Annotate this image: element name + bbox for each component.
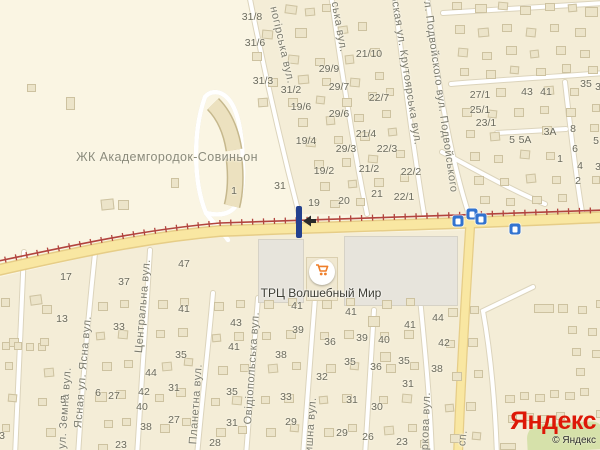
house-number: 8 xyxy=(570,123,576,135)
residential-complex-label: ЖК Академгородок-Совиньон xyxy=(76,150,258,164)
house-number: 23 xyxy=(115,439,127,450)
building xyxy=(452,372,462,381)
house-number: 22/7 xyxy=(369,92,389,104)
building xyxy=(66,97,75,110)
building xyxy=(494,155,503,163)
building xyxy=(592,104,600,112)
building xyxy=(526,28,537,38)
building xyxy=(218,366,228,375)
house-number: 41 xyxy=(404,319,416,331)
building xyxy=(350,78,361,88)
building xyxy=(14,342,22,350)
building xyxy=(585,7,598,17)
building xyxy=(46,428,56,437)
house-number: 1 xyxy=(557,153,563,165)
building xyxy=(580,50,590,58)
house-number: 21/10 xyxy=(356,48,382,60)
building xyxy=(565,392,575,400)
house-number: 25/1 xyxy=(470,104,490,116)
house-number: 31/3 xyxy=(253,75,273,87)
building xyxy=(510,66,520,75)
building xyxy=(374,178,384,187)
house-number: 38 xyxy=(275,349,287,361)
house-number: 19 xyxy=(308,197,320,209)
building xyxy=(546,152,555,160)
house-number: 36 xyxy=(370,361,382,373)
house-number: 5А xyxy=(519,134,532,146)
building xyxy=(534,304,554,313)
building xyxy=(404,330,414,339)
house-number: 38 xyxy=(140,421,152,433)
residential-complex-building xyxy=(213,104,234,150)
building xyxy=(324,428,334,437)
building xyxy=(520,150,531,160)
building xyxy=(588,66,598,74)
building xyxy=(122,418,131,426)
house-number: 35 xyxy=(398,355,410,367)
house-number: 5 xyxy=(60,394,66,406)
house-number: 31 xyxy=(402,378,414,390)
house-number: 3 xyxy=(0,430,5,442)
house-number: 21 xyxy=(371,188,383,200)
map-attribution: Яндекс © Яндекс xyxy=(510,409,596,446)
building xyxy=(396,150,405,158)
house-number: 40 xyxy=(136,401,148,413)
building xyxy=(502,24,512,32)
building xyxy=(348,424,357,432)
building xyxy=(42,305,52,314)
house-number: 27/1 xyxy=(470,89,490,101)
building xyxy=(526,174,537,184)
house-number: 19/4 xyxy=(296,135,316,147)
building xyxy=(356,198,365,206)
building xyxy=(98,444,108,450)
house-number: 43 xyxy=(230,317,242,329)
building xyxy=(410,362,419,370)
building xyxy=(592,350,600,358)
house-number: 31/6 xyxy=(245,37,265,49)
building xyxy=(382,110,391,118)
building xyxy=(455,25,465,34)
building xyxy=(408,424,417,432)
house-number: 31 xyxy=(168,382,180,394)
building xyxy=(550,24,559,32)
building xyxy=(578,306,587,314)
building xyxy=(354,114,364,122)
house-number: 39 xyxy=(292,324,304,336)
copyright-link[interactable]: © Яндекс xyxy=(510,436,596,446)
building xyxy=(238,426,247,434)
building xyxy=(120,300,129,308)
building xyxy=(295,28,307,38)
building xyxy=(258,98,269,108)
house-number: 37 xyxy=(118,276,130,288)
building xyxy=(556,46,566,55)
building xyxy=(530,50,540,59)
building xyxy=(158,300,168,309)
house-number: 3 xyxy=(595,161,600,173)
building xyxy=(171,178,179,188)
tram-glyph xyxy=(456,218,461,224)
building xyxy=(8,394,18,403)
tram-glyph xyxy=(513,226,518,232)
house-number: 3А xyxy=(544,126,557,138)
map-canvas[interactable]: ТРЦ Волшебный Мир ЖК Академгородок-Совин… xyxy=(0,0,600,450)
house-number: 31 xyxy=(226,417,238,429)
building xyxy=(570,88,579,96)
house-number: 35 xyxy=(175,349,187,361)
house-number: 41 xyxy=(178,303,190,315)
building xyxy=(388,128,398,137)
house-number: 28 xyxy=(209,437,221,449)
building xyxy=(368,316,380,327)
building xyxy=(470,306,479,314)
building xyxy=(580,388,589,396)
house-number: 26 xyxy=(362,431,374,443)
building xyxy=(468,338,478,347)
building xyxy=(38,398,47,406)
transit-stop-icon[interactable] xyxy=(510,224,521,235)
building xyxy=(480,196,490,204)
building xyxy=(490,132,501,142)
building xyxy=(178,328,188,337)
house-number: 44 xyxy=(145,367,157,379)
house-number: 41 xyxy=(291,300,303,312)
house-number: 41 xyxy=(228,341,240,353)
house-number: 36 xyxy=(324,336,336,348)
building xyxy=(452,2,462,10)
building xyxy=(466,402,476,411)
house-number: 32 xyxy=(316,371,328,383)
building xyxy=(292,362,301,370)
building xyxy=(576,368,585,376)
building xyxy=(596,300,600,308)
house-number: 29/7 xyxy=(329,81,349,93)
building xyxy=(29,294,42,306)
cursor-arrow-icon xyxy=(301,214,317,233)
house-number: 17 xyxy=(60,271,72,283)
building xyxy=(575,28,586,37)
building xyxy=(590,124,599,132)
house-number: 4 xyxy=(577,160,583,172)
building xyxy=(298,75,310,85)
building xyxy=(236,300,245,308)
building xyxy=(472,432,482,441)
building xyxy=(384,426,395,436)
building xyxy=(558,304,568,313)
building xyxy=(262,332,271,340)
street-label: ркова вул. xyxy=(419,392,433,450)
building xyxy=(234,332,244,341)
building xyxy=(342,98,352,107)
building xyxy=(568,4,578,13)
building xyxy=(486,70,496,79)
building xyxy=(496,88,506,97)
house-number: 22/1 xyxy=(394,191,414,203)
house-number: 2 xyxy=(575,175,581,187)
building xyxy=(562,64,571,73)
building xyxy=(592,176,600,184)
house-number: 41 xyxy=(540,86,552,98)
house-number: 27 xyxy=(168,414,180,426)
house-number: 21/2 xyxy=(359,163,379,175)
house-number: 5 xyxy=(593,135,599,147)
building xyxy=(550,390,559,398)
building xyxy=(466,130,475,138)
building xyxy=(98,302,108,311)
house-number: 31/2 xyxy=(281,84,301,96)
building xyxy=(358,22,367,31)
building xyxy=(342,158,351,167)
building xyxy=(155,394,164,402)
building xyxy=(344,330,354,339)
house-number: 42 xyxy=(438,337,450,349)
shopping-cart-icon xyxy=(314,262,330,283)
building xyxy=(162,362,173,372)
house-number: 38 xyxy=(431,363,443,375)
house-number: 22/2 xyxy=(401,166,421,178)
building xyxy=(1,298,10,307)
building xyxy=(27,84,36,92)
building xyxy=(470,152,480,161)
house-number: 31 xyxy=(346,394,358,406)
building xyxy=(532,196,542,204)
building xyxy=(298,118,308,127)
house-number: 19/6 xyxy=(291,101,311,113)
house-number: 41 xyxy=(345,306,357,318)
house-number: 27 xyxy=(108,390,120,402)
building xyxy=(264,300,274,309)
building xyxy=(386,364,396,373)
house-number: 35 xyxy=(226,386,238,398)
building xyxy=(382,300,392,309)
building xyxy=(375,72,384,80)
street-label: сп. xyxy=(456,429,470,446)
building xyxy=(268,364,279,374)
tram-glyph xyxy=(479,216,484,222)
building xyxy=(5,362,13,370)
house-number: 47 xyxy=(178,258,190,270)
building xyxy=(216,428,226,437)
house-number: 23 xyxy=(396,436,408,448)
building xyxy=(558,194,567,202)
building xyxy=(102,362,112,371)
building xyxy=(568,326,577,334)
building xyxy=(214,302,224,311)
house-number: 39 xyxy=(356,332,368,344)
building xyxy=(520,6,531,15)
house-number: 33 xyxy=(280,391,292,403)
house-number: 42 xyxy=(138,386,150,398)
building xyxy=(211,398,220,406)
house-number: 22/3 xyxy=(377,143,397,155)
building xyxy=(535,394,545,402)
house-number: 3 xyxy=(595,81,600,93)
building xyxy=(506,198,515,206)
building xyxy=(514,108,524,117)
building xyxy=(545,3,555,11)
building xyxy=(402,394,413,404)
building xyxy=(536,68,546,76)
house-number: 43 xyxy=(521,86,533,98)
building xyxy=(552,176,561,184)
building xyxy=(96,332,106,341)
building xyxy=(540,106,549,114)
mall-poi-label[interactable]: ТРЦ Волшебный Мир xyxy=(261,286,382,300)
building xyxy=(505,395,515,403)
building xyxy=(124,360,133,368)
building xyxy=(284,4,297,15)
tram-glyph xyxy=(470,211,475,217)
house-number: 1 xyxy=(231,185,237,197)
house-number: 13 xyxy=(56,313,68,325)
building xyxy=(319,396,329,405)
building xyxy=(566,108,576,117)
building xyxy=(261,396,270,404)
building xyxy=(252,52,262,61)
yandex-logo[interactable]: Яндекс xyxy=(510,409,596,434)
building xyxy=(498,2,509,11)
building xyxy=(26,343,34,351)
building xyxy=(478,28,490,38)
mall-poi-pin[interactable] xyxy=(309,259,335,285)
transit-stop-icon[interactable] xyxy=(453,216,464,227)
building xyxy=(506,46,517,55)
building xyxy=(406,298,415,306)
house-number: 6 xyxy=(572,143,578,155)
building xyxy=(320,182,330,191)
house-number: 35 xyxy=(580,78,592,90)
house-number: 20 xyxy=(338,195,350,207)
building xyxy=(118,200,129,210)
building xyxy=(44,368,55,378)
building xyxy=(345,55,355,65)
building xyxy=(305,8,316,17)
building xyxy=(266,428,276,437)
building xyxy=(40,338,49,346)
house-number: 23/1 xyxy=(476,117,496,129)
building xyxy=(2,342,10,350)
building xyxy=(460,68,469,76)
building xyxy=(212,334,222,343)
house-number: 40 xyxy=(378,334,390,346)
building xyxy=(474,176,484,185)
house-number: 29/9 xyxy=(319,63,339,75)
house-number: 44 xyxy=(432,312,444,324)
house-number: 31/8 xyxy=(242,11,262,23)
house-number: 29 xyxy=(336,427,348,439)
house-number: 29/3 xyxy=(336,143,356,155)
house-number: 29 xyxy=(285,416,297,428)
building xyxy=(458,48,469,58)
building xyxy=(474,370,483,378)
building xyxy=(316,96,326,105)
building xyxy=(156,330,165,338)
building xyxy=(475,4,487,13)
house-number: 29/6 xyxy=(329,108,349,120)
building xyxy=(500,178,509,186)
building xyxy=(322,300,332,309)
building xyxy=(100,198,114,210)
house-number: 19/2 xyxy=(314,165,334,177)
house-number: 33 xyxy=(113,321,125,333)
building xyxy=(588,328,597,336)
building xyxy=(445,404,455,413)
building xyxy=(348,180,358,189)
building xyxy=(482,52,492,60)
house-number: 30 xyxy=(371,401,383,413)
transit-stop-icon[interactable] xyxy=(476,214,487,225)
building xyxy=(572,348,581,356)
building xyxy=(448,308,458,317)
house-number: 21/4 xyxy=(356,128,376,140)
house-number: 6 xyxy=(95,387,101,399)
building xyxy=(596,410,600,418)
house-number: 5 xyxy=(509,134,515,146)
house-number: 31 xyxy=(274,180,286,192)
building xyxy=(520,392,529,400)
building xyxy=(104,420,113,428)
house-number: 35 xyxy=(344,356,356,368)
